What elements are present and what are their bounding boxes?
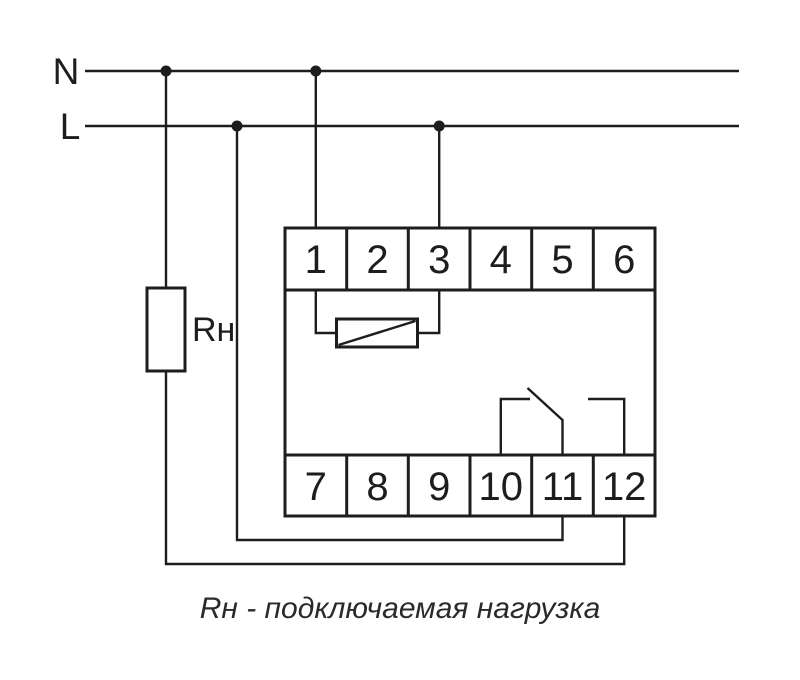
terminal-number-5: 5 bbox=[551, 238, 573, 282]
terminal-number-4: 4 bbox=[490, 238, 512, 282]
neutral-label: N bbox=[53, 51, 80, 92]
junction-dot-live-coil bbox=[434, 121, 445, 132]
device bbox=[285, 228, 655, 516]
terminal-number-2: 2 bbox=[366, 238, 388, 282]
load-resistor-symbol bbox=[147, 288, 185, 371]
terminal-number-6: 6 bbox=[613, 238, 635, 282]
terminal-number-8: 8 bbox=[366, 465, 388, 509]
terminal-number-10: 10 bbox=[479, 465, 524, 509]
terminal-number-7: 7 bbox=[305, 465, 327, 509]
junction-dot-live-contact bbox=[232, 121, 243, 132]
junction-dots bbox=[161, 66, 445, 132]
terminal-number-9: 9 bbox=[428, 465, 450, 509]
load-group bbox=[147, 288, 185, 371]
terminal-number-1: 1 bbox=[305, 238, 327, 282]
terminal-number-11: 11 bbox=[542, 465, 584, 509]
wiring-diagram: N L Rн 1 2 3 4 5 6 7 8 9 10 11 12 Rн - п… bbox=[0, 0, 800, 680]
diagram-caption: Rн - подключаемая нагрузка bbox=[200, 592, 601, 625]
terminal-number-12: 12 bbox=[602, 465, 647, 509]
junction-dot-neutral-load bbox=[161, 66, 172, 77]
live-label: L bbox=[60, 106, 81, 147]
terminal-number-3: 3 bbox=[428, 238, 450, 282]
wiring-diagram-page: N L Rн 1 2 3 4 5 6 7 8 9 10 11 12 Rн - п… bbox=[0, 0, 800, 680]
junction-dot-neutral-coil bbox=[310, 66, 321, 77]
load-label: Rн bbox=[192, 311, 235, 349]
